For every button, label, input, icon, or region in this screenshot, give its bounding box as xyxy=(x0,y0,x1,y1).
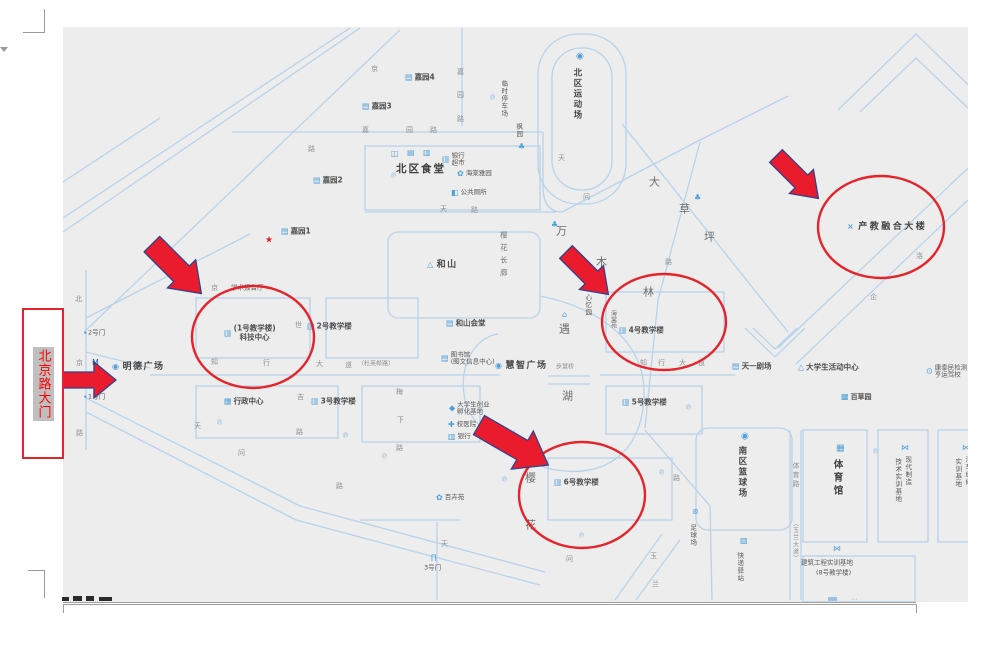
map-label: 草 xyxy=(679,204,690,217)
north-sports-field-label: 北区运动场 xyxy=(571,68,581,121)
parking-icon: ℗ xyxy=(381,454,388,461)
map-label: 知 xyxy=(640,359,647,367)
map-icon: ▥ xyxy=(311,398,319,406)
map-icon: ▤ xyxy=(313,177,321,185)
haitang-garden-label: ✿海棠雅园 xyxy=(457,170,492,178)
map-label: 企 xyxy=(870,293,877,301)
parking-icon: ℗ xyxy=(216,420,223,427)
building1-scitech-label: ▥(1号教学楼)科技中心 xyxy=(224,324,276,341)
map-label: 兰 xyxy=(652,580,659,588)
map-label: 园 xyxy=(457,91,464,99)
map-icon: ✚ xyxy=(448,421,455,429)
map-label: 大 xyxy=(316,360,323,368)
tianyi-theater-label: ▤天一剧场 xyxy=(732,363,772,372)
map-icon: ▥ xyxy=(448,433,456,441)
map-label: 天 xyxy=(440,205,447,213)
parking-icon: ℗ xyxy=(578,533,585,540)
map-label: 大 xyxy=(679,359,686,367)
map-label: 林 xyxy=(643,287,654,300)
map-label: 京 xyxy=(211,284,218,292)
driving-school-label: ⊙康泰民检测亨运驾校 xyxy=(926,365,967,380)
map-label: 道 xyxy=(345,361,352,369)
map-label: 樱 xyxy=(525,473,536,486)
lecture-hall-label: 学术报告厅 xyxy=(231,284,264,291)
map-label: 嘉 xyxy=(457,68,464,76)
map-icon: ⊙ xyxy=(926,368,933,376)
jiayuan1-label: ▤嘉园1 xyxy=(281,228,311,237)
crop-mark-top-left xyxy=(23,32,45,33)
pavilion-icon: ⌂ xyxy=(562,311,567,319)
haitang-court-label: 海棠苑 xyxy=(609,310,616,328)
training-base-icon: ⋈ xyxy=(901,444,909,452)
gym-icon: ▦ xyxy=(836,445,845,454)
jiayuan2-label: ▤嘉园2 xyxy=(313,177,343,186)
map-label: 北 xyxy=(75,295,82,303)
library-label: ▤图书馆(图文信息中心) xyxy=(441,352,495,367)
modern-mfg-label: 现代制造 xyxy=(903,456,910,486)
map-label: 洛 xyxy=(916,252,923,260)
map-labels-layer: ▤嘉园4▤嘉园3▤嘉园2▤嘉园1★北区食堂◫▤▥▥银行超市✿海棠雅园◧公共厕所℗… xyxy=(0,0,1000,645)
parking-icon: ℗ xyxy=(658,470,665,477)
map-icon: ▥ xyxy=(622,399,630,407)
admin-center-label: ▦行政中心 xyxy=(224,398,264,407)
map-icon: △ xyxy=(427,261,435,269)
map-label: 京 xyxy=(371,65,378,73)
map-icon: ◧ xyxy=(451,189,459,197)
parking-icon: ℗ xyxy=(342,433,349,440)
soccer-icon: ⊛ xyxy=(692,508,699,516)
crop-mark-top-left xyxy=(44,9,45,33)
map-label: 问 xyxy=(583,193,590,201)
map-label: 下 xyxy=(397,416,404,424)
parking-icon: ℗ xyxy=(872,449,879,456)
soccer-icon: ⊛ xyxy=(692,508,699,516)
basketball-icon: ◉ xyxy=(741,433,749,442)
map-label: 路 xyxy=(471,206,478,214)
temp-parking-label: 临时停车场 xyxy=(499,80,506,118)
building2-label: ▥2号教学楼 xyxy=(307,323,352,332)
canteen-icon: ▥ xyxy=(423,149,431,157)
map-label: 花 xyxy=(525,520,536,533)
pavilion-icon: ⌂ xyxy=(562,311,567,319)
parking-icon: ℗ xyxy=(381,454,388,461)
bridge-label: 步慧桥 xyxy=(556,365,574,372)
map-label: 嘉 xyxy=(362,126,369,134)
jiayuan3-label: ▤嘉园3 xyxy=(362,103,392,112)
bank-label: ▥银行 xyxy=(448,433,471,441)
map-icon: ▦ xyxy=(224,398,232,406)
flower-icon: ✿ xyxy=(526,452,533,460)
ruler-marker-icon xyxy=(0,47,8,52)
parking-icon: ℗ xyxy=(578,533,585,540)
parking-icon: ℗ xyxy=(216,420,223,427)
canteen-icon: ▤ xyxy=(407,149,415,157)
map-label: 路 xyxy=(665,258,672,266)
map-icon: △ xyxy=(798,364,804,372)
gate3-label: 3号门 xyxy=(424,564,441,571)
flower-icon: ✿ xyxy=(526,452,533,460)
map-icon: ▥ xyxy=(224,329,232,337)
modern-mfg-label2: 技术实训基地 xyxy=(893,458,900,503)
gate-annotation-text: 北京路大门 xyxy=(33,347,54,421)
map-label: 知 xyxy=(211,358,218,366)
map-label: 园 xyxy=(406,126,413,134)
gymnasium-label: 体育馆 xyxy=(831,459,842,498)
building4-label: ▥4号教学楼 xyxy=(619,327,664,336)
map-icon: ✿ xyxy=(436,494,443,502)
map-label: 路 xyxy=(296,428,303,436)
fengyuan-label: 枫园 xyxy=(514,123,521,138)
parking-icon: ℗ xyxy=(501,477,508,484)
map-label: 路 xyxy=(673,474,680,482)
map-icon: ▤ xyxy=(362,103,370,111)
map-label: 坪 xyxy=(704,232,715,245)
map-icon: ▤ xyxy=(732,363,740,371)
tree-icon: ♣ xyxy=(694,194,701,202)
dot-icon: ● xyxy=(84,332,87,335)
parking-icon: ℗ xyxy=(390,173,397,180)
parking-icon: ℗ xyxy=(501,477,508,484)
crop-mark-bottom-left xyxy=(44,570,45,598)
express-icon: ▧ xyxy=(740,537,748,545)
tree-icon: ♣ xyxy=(551,221,558,229)
map-label: 木 xyxy=(596,257,607,270)
map-label: 玉 xyxy=(650,552,657,560)
clipped-text-fragment xyxy=(828,597,837,601)
tree-icon: ♣ xyxy=(551,221,558,229)
express-icon: ▧ xyxy=(740,537,748,545)
map-icon: ✿ xyxy=(457,170,464,178)
garden-icon: ♣ xyxy=(518,143,525,151)
map-label: 梅 xyxy=(396,388,403,396)
map-icon: ▤ xyxy=(281,228,289,236)
clipped-text-fragment xyxy=(86,596,94,601)
south-basketball-label: 南区篮球场 xyxy=(736,446,746,499)
map-icon: ▥ xyxy=(554,479,562,487)
map-label: 吉 xyxy=(297,393,304,401)
map-icon: ▩ xyxy=(841,393,849,401)
stadium-icon: ◉ xyxy=(576,53,584,62)
crop-mark-bottom-left xyxy=(28,570,45,571)
map-label: 大 xyxy=(649,177,660,190)
auto-repair-label: 汽车维修 xyxy=(963,456,970,486)
garden-icon: ♣ xyxy=(518,143,525,151)
gate-icon: ∏ xyxy=(431,555,436,562)
map-icon: ▥ xyxy=(619,327,627,335)
hospital-label: ✚校医院 xyxy=(448,421,476,429)
clipped-text-fragment xyxy=(62,597,69,601)
parking-icon: ℗ xyxy=(390,173,397,180)
gate1-label: 1号门 xyxy=(88,393,105,400)
bank-store-label: ▥银行超市 xyxy=(442,153,465,168)
stadium-icon: ◉ xyxy=(576,53,584,62)
tree-icon: ♣ xyxy=(694,194,701,202)
parking-icon: ℗ xyxy=(685,405,692,412)
map-label: 天 xyxy=(441,540,448,548)
map-icon: ▥ xyxy=(442,156,450,164)
student-activity-center-label: △大学生活动中心 xyxy=(798,364,859,373)
industry-education-building-label: ×产教融合大楼 xyxy=(847,222,927,232)
map-label: 行 xyxy=(263,359,270,367)
landmark-m-icon: M xyxy=(92,359,99,367)
building3-label: ▥3号教学楼 xyxy=(311,398,356,407)
sports-road-label: 体育路 xyxy=(792,462,800,489)
north-canteen-label: 北区食堂 xyxy=(396,163,446,175)
parking-icon: ℗ xyxy=(489,95,496,102)
map-icon: ◉ xyxy=(495,362,503,370)
map-label: 问 xyxy=(566,555,573,563)
map-bottom-border xyxy=(63,602,916,603)
star-icon: ★ xyxy=(265,237,273,246)
soccer-field-label: 足球场 xyxy=(688,524,695,547)
dot-icon: ● xyxy=(84,396,87,399)
clipped-text-fragment xyxy=(73,596,82,601)
incubator-label: ◆大学生创业孵化基地 xyxy=(449,402,490,417)
dot-icon: ● xyxy=(84,332,87,335)
map-label: 京 xyxy=(76,359,83,367)
map-icon: ▤ xyxy=(441,355,449,363)
parking-icon: ℗ xyxy=(658,470,665,477)
map-label: 天 xyxy=(194,422,201,430)
mingde-square-label: ◉明德广场 xyxy=(112,362,165,372)
map-icon: × xyxy=(847,223,856,231)
canteen-icon: ◫ xyxy=(391,150,399,158)
map-label: 路 xyxy=(336,482,343,490)
jiayuan4-label: ▤嘉园4 xyxy=(405,74,435,83)
map-label: 路 xyxy=(76,429,83,437)
gate-icon: ∏ xyxy=(431,555,436,562)
canteen-icon: ◫ xyxy=(391,150,399,158)
express-station-label: 快递驿站 xyxy=(735,552,742,582)
map-label: 路 xyxy=(396,444,403,452)
parking-icon: ℗ xyxy=(872,449,879,456)
basketball-icon: ◉ xyxy=(741,433,749,442)
gate-annotation-box: 北京路大门 xyxy=(22,308,64,459)
map-label: 行 xyxy=(658,359,665,367)
map-label: 湖 xyxy=(562,391,573,404)
gate2-label: 2号门 xyxy=(88,329,105,336)
clipped-text-fragment xyxy=(99,597,112,601)
parking-icon: ℗ xyxy=(489,95,496,102)
xinyi-garden-label: 心忆园 xyxy=(583,294,590,317)
map-label: 问 xyxy=(238,449,245,457)
yulan-avenue-label: （玉兰大道） xyxy=(791,520,798,562)
parking-icon: ℗ xyxy=(342,433,349,440)
dot-icon: ● xyxy=(84,396,87,399)
map-icon: ▥ xyxy=(307,323,315,331)
heshan-label: △和山 xyxy=(427,260,458,270)
training-base-icon: ⋈ xyxy=(901,444,909,452)
map-label: 路 xyxy=(430,126,437,134)
map-label: 路 xyxy=(457,115,464,123)
baihui-garden-label: ✿百卉苑 xyxy=(436,494,464,502)
building5-label: ▥5号教学楼 xyxy=(622,399,667,408)
huizhi-square-label: ◉慧智广场 xyxy=(495,361,548,371)
map-icon: ◆ xyxy=(449,405,455,413)
training-base-icon: ⋈ xyxy=(962,444,970,452)
baicao-garden-label: ▩百草园 xyxy=(841,393,872,401)
training-base-icon: ⋈ xyxy=(833,545,841,553)
map-label: 道 xyxy=(698,359,705,367)
clipped-dots: ⋯ xyxy=(851,596,857,603)
map-label: 路 xyxy=(308,145,315,153)
auto-repair-label2: 实训基地 xyxy=(953,458,960,488)
training-base-icon: ⋈ xyxy=(833,545,841,553)
clipped-textbox-outline xyxy=(63,604,917,613)
building8-label: (8号教学楼) xyxy=(816,569,851,576)
star-icon: ★ xyxy=(265,237,273,246)
training-base-icon: ⋈ xyxy=(962,444,970,452)
parking-icon: ℗ xyxy=(685,405,692,412)
map-label: 世 xyxy=(295,321,302,329)
canteen-icon: ▤ xyxy=(407,149,415,157)
map-label: 遇 xyxy=(559,324,570,337)
map-icon: ◉ xyxy=(112,363,120,371)
road-name-bracket: （杜英桦路） xyxy=(358,362,394,369)
map-icon: ▤ xyxy=(446,320,454,328)
heshan-hall-label: ▤和山会堂 xyxy=(446,320,486,329)
public-toilet-label: ◧公共厕所 xyxy=(451,189,487,197)
gym-icon: ▦ xyxy=(836,445,845,454)
cherry-corridor-label: 樱花长廊 xyxy=(499,231,508,281)
landmark-m-icon: M xyxy=(92,359,99,367)
building6-label: ▥6号教学楼 xyxy=(554,479,599,488)
canteen-icon: ▥ xyxy=(423,149,431,157)
map-label: 天 xyxy=(558,154,565,162)
map-icon: ▤ xyxy=(405,74,413,82)
construction-base-label: 建筑工程实训基地 xyxy=(801,559,853,566)
